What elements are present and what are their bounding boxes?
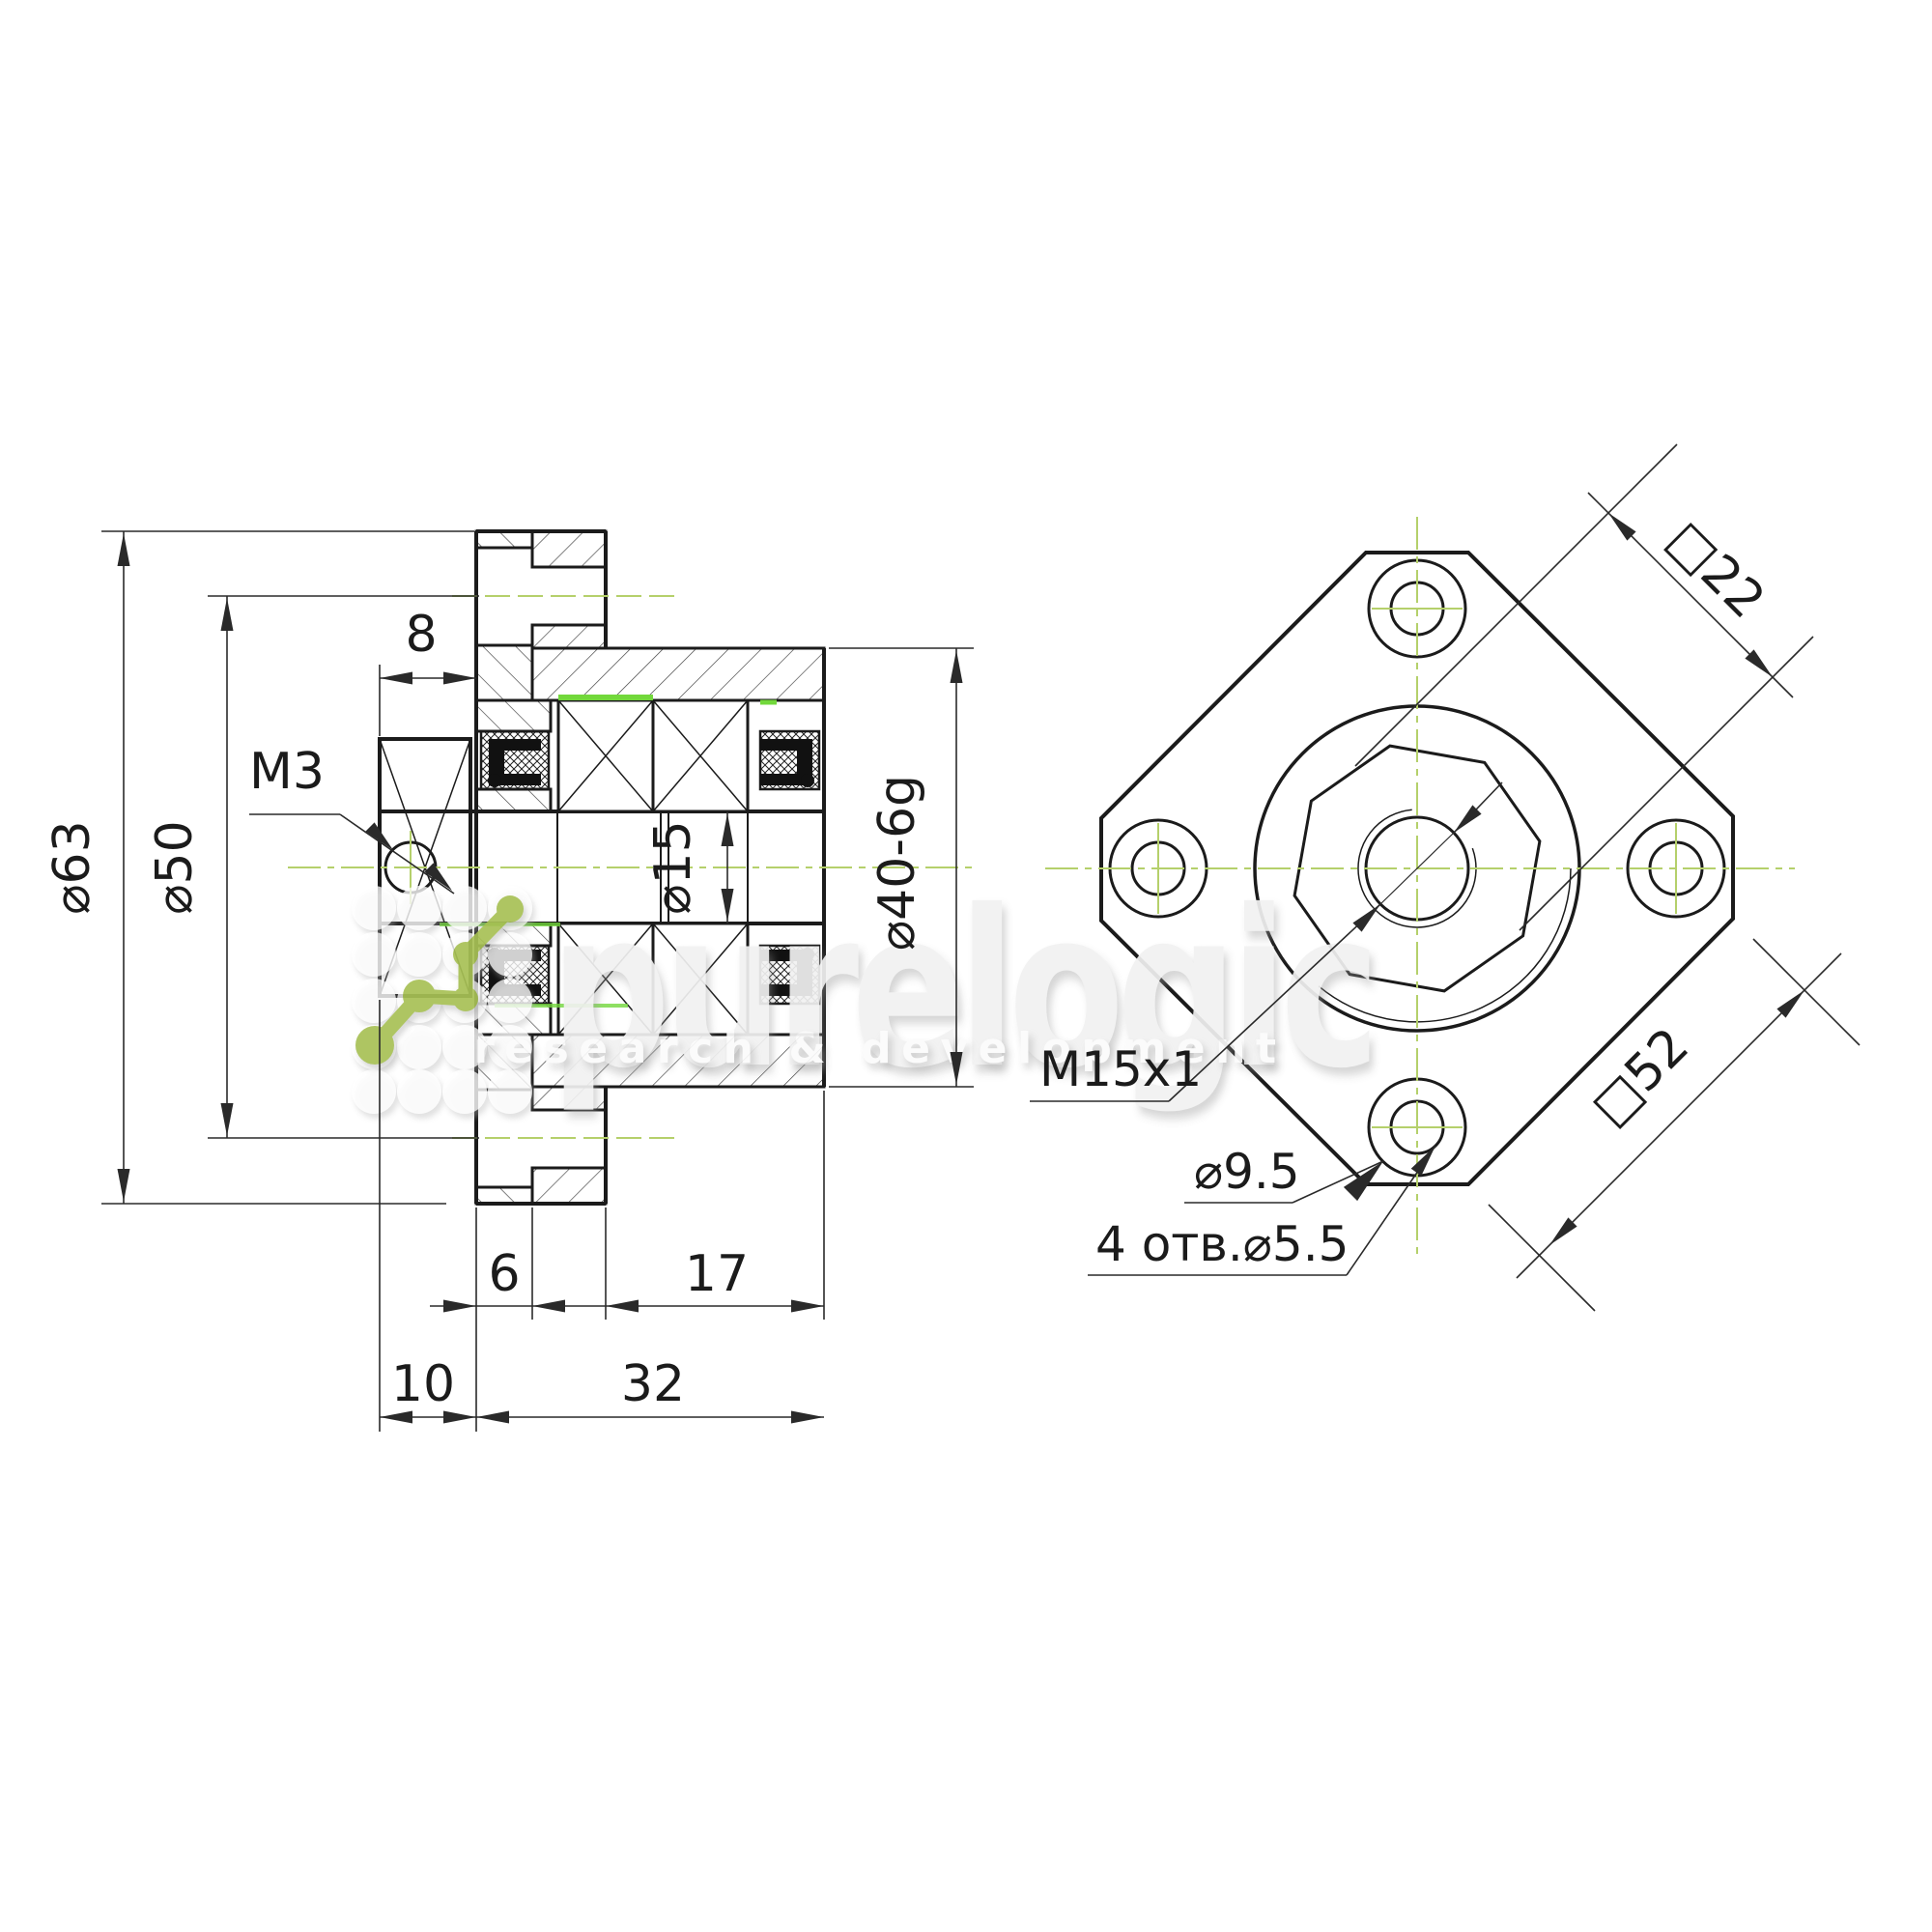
dim-dia50-label: ⌀50 [146,820,204,914]
seal-front-top [481,731,549,789]
dim-dia63-label: ⌀63 [43,820,101,914]
dim-8-label: 8 [405,606,437,664]
dim-17-label: 17 [685,1245,749,1303]
dim-dia9-5-label: ⌀9.5 [1194,1144,1300,1200]
watermark: purelogic research & development [352,865,1373,1117]
dim-dia40-label: ⌀40-6g [868,775,926,951]
dim-sq22-label: □22 [1656,510,1776,630]
dim-10-label: 10 [391,1355,455,1413]
dim-sq52-label: □52 [1580,1017,1700,1137]
dim-m3-label: M3 [249,743,325,801]
dim-4holes-label: 4 отв.⌀5.5 [1095,1216,1349,1272]
dim-m15x1-label: M15x1 [1039,1041,1202,1097]
dim-dia15-label: ⌀15 [644,820,702,914]
dim-32-label: 32 [621,1355,685,1413]
seal-rear-top [760,731,819,789]
technical-drawing-canvas: purelogic research & development [0,0,1932,1932]
cad-drawing-page: purelogic research & development [0,0,1932,1932]
dim-6-label: 6 [488,1245,520,1303]
